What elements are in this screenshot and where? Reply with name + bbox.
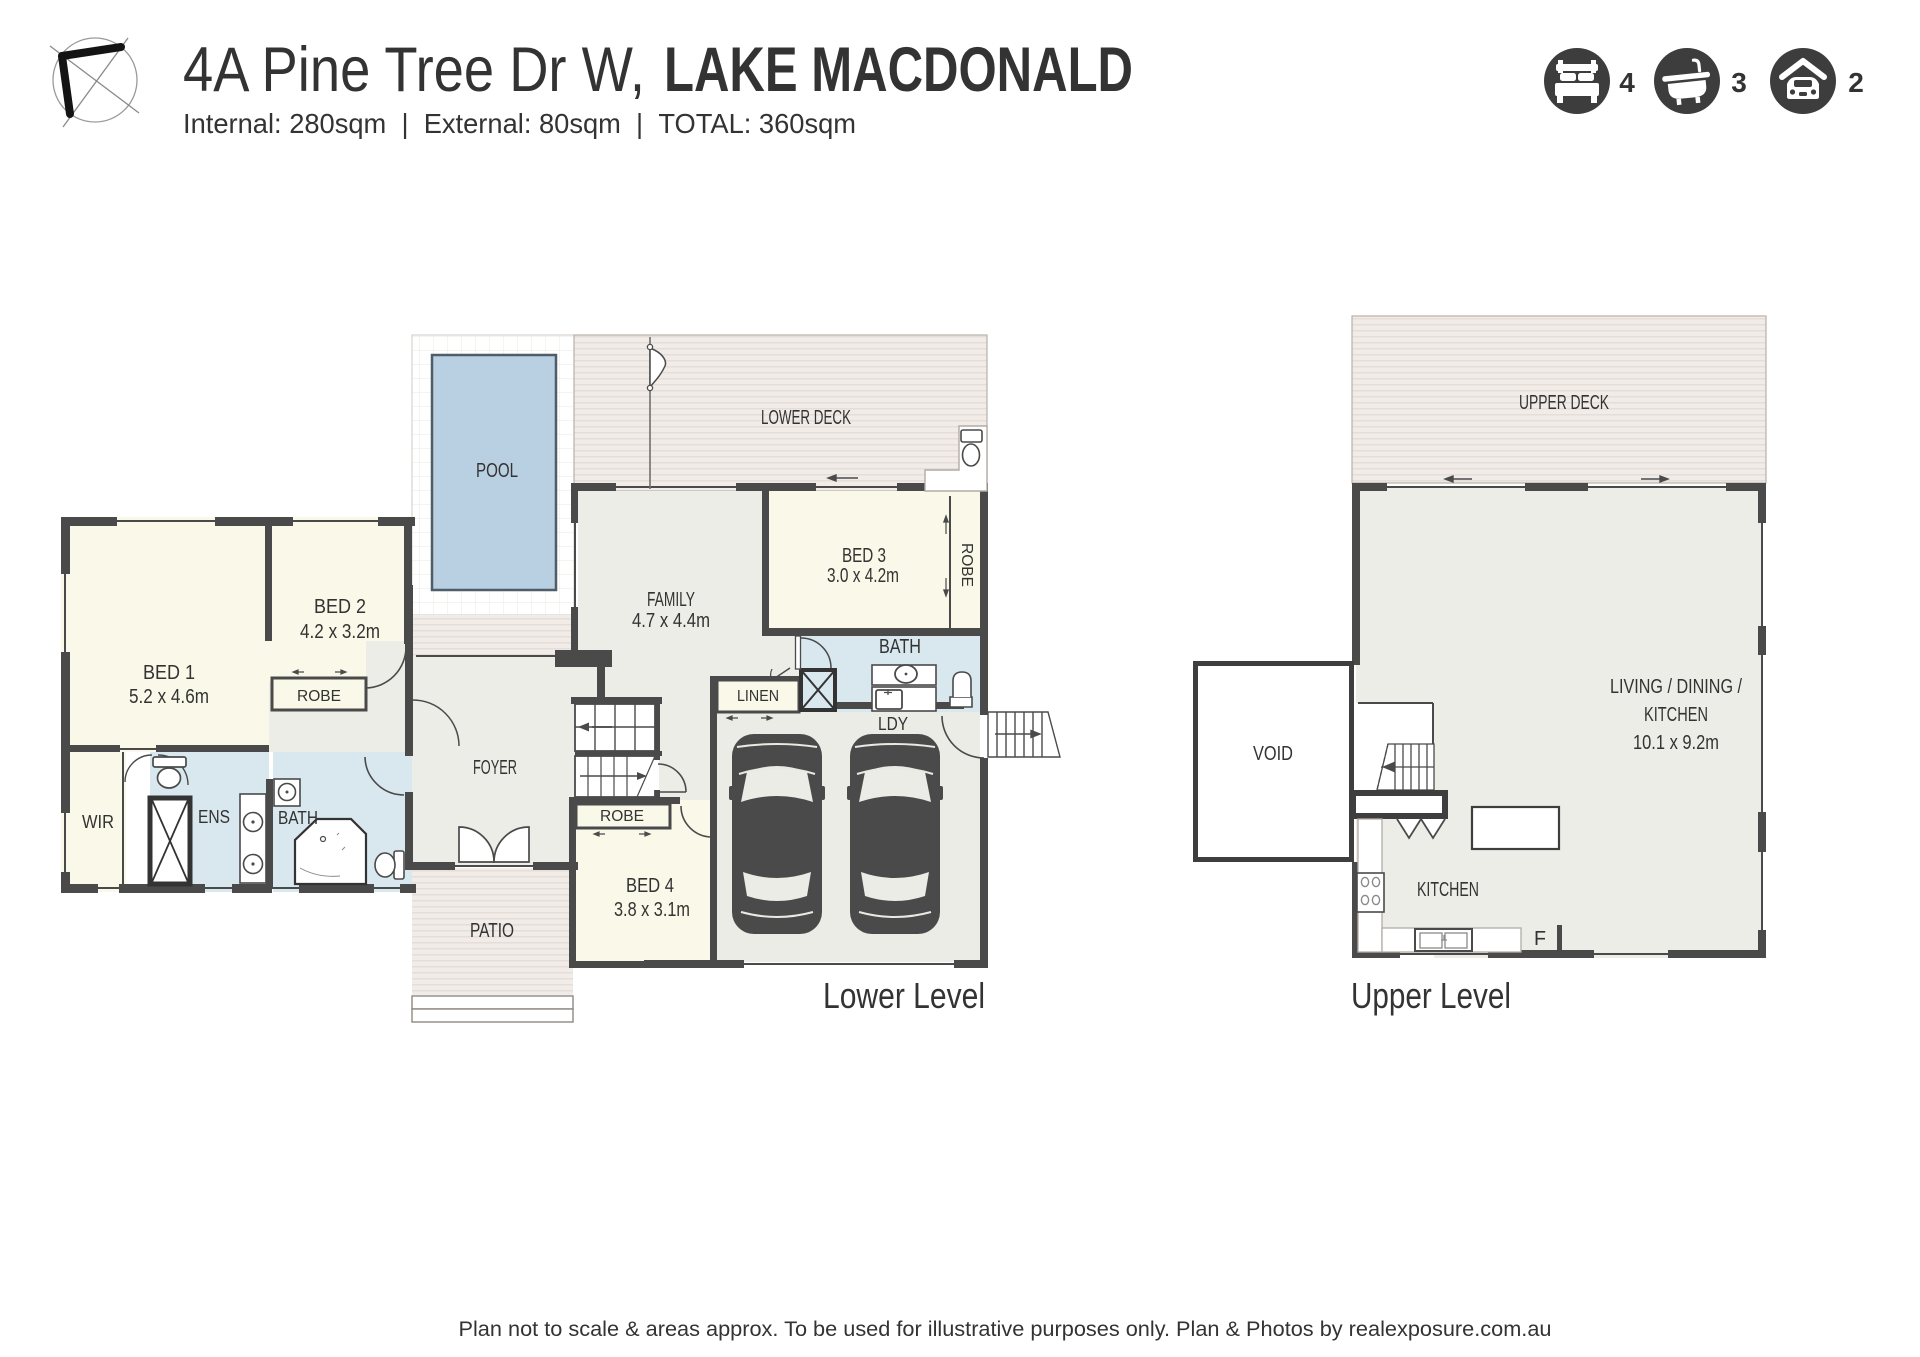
svg-text:Upper Level: Upper Level (1351, 975, 1511, 1016)
svg-text:3.0 x 4.2m: 3.0 x 4.2m (827, 565, 899, 587)
svg-text:KITCHEN: KITCHEN (1417, 879, 1479, 901)
svg-text:LINEN: LINEN (737, 688, 779, 705)
svg-text:LDY: LDY (878, 714, 908, 734)
svg-text:3.8 x 3.1m: 3.8 x 3.1m (614, 899, 690, 921)
svg-text:BATH: BATH (879, 636, 921, 658)
svg-text:3: 3 (1731, 67, 1747, 98)
svg-text:4A Pine Tree Dr W,: 4A Pine Tree Dr W, (183, 35, 645, 105)
svg-text:BATH: BATH (278, 808, 318, 828)
svg-text:4.7 x 4.4m: 4.7 x 4.4m (632, 610, 710, 632)
svg-text:LOWER DECK: LOWER DECK (761, 407, 851, 429)
svg-text:BED 1: BED 1 (143, 662, 195, 684)
svg-text:VOID: VOID (1253, 743, 1293, 765)
svg-text:BED 4: BED 4 (626, 875, 674, 897)
svg-text:Plan not to scale & areas appr: Plan not to scale & areas approx. To be … (459, 1318, 1552, 1341)
svg-text:F: F (1534, 928, 1546, 950)
svg-text:4.2 x 3.2m: 4.2 x 3.2m (300, 621, 380, 643)
svg-text:Internal: 280sqm | External:: Internal: 280sqm | External: 80sqm | TOT… (183, 108, 856, 139)
svg-text:FAMILY: FAMILY (647, 589, 695, 611)
svg-text:10.1 x 9.2m: 10.1 x 9.2m (1633, 732, 1719, 754)
svg-text:BED 2: BED 2 (314, 596, 366, 618)
svg-text:ROBE: ROBE (600, 808, 644, 825)
svg-text:UPPER DECK: UPPER DECK (1519, 392, 1609, 414)
svg-text:2: 2 (1848, 67, 1864, 98)
svg-text:ENS: ENS (198, 807, 230, 827)
svg-text:ROBE: ROBE (297, 688, 341, 705)
svg-text:FOYER: FOYER (473, 757, 517, 779)
svg-text:POOL: POOL (476, 460, 518, 482)
svg-text:BED 3: BED 3 (842, 545, 886, 567)
svg-text:5.2 x 4.6m: 5.2 x 4.6m (129, 686, 209, 708)
svg-text:LIVING / DINING /: LIVING / DINING / (1610, 676, 1742, 698)
svg-text:KITCHEN: KITCHEN (1644, 704, 1708, 726)
svg-text:ROBE: ROBE (958, 543, 975, 587)
svg-text:Lower Level: Lower Level (823, 975, 985, 1016)
svg-text:PATIO: PATIO (470, 920, 514, 942)
svg-text:4: 4 (1619, 67, 1635, 98)
svg-text:WIR: WIR (82, 812, 114, 832)
svg-text:LAKE MACDONALD: LAKE MACDONALD (664, 35, 1133, 105)
